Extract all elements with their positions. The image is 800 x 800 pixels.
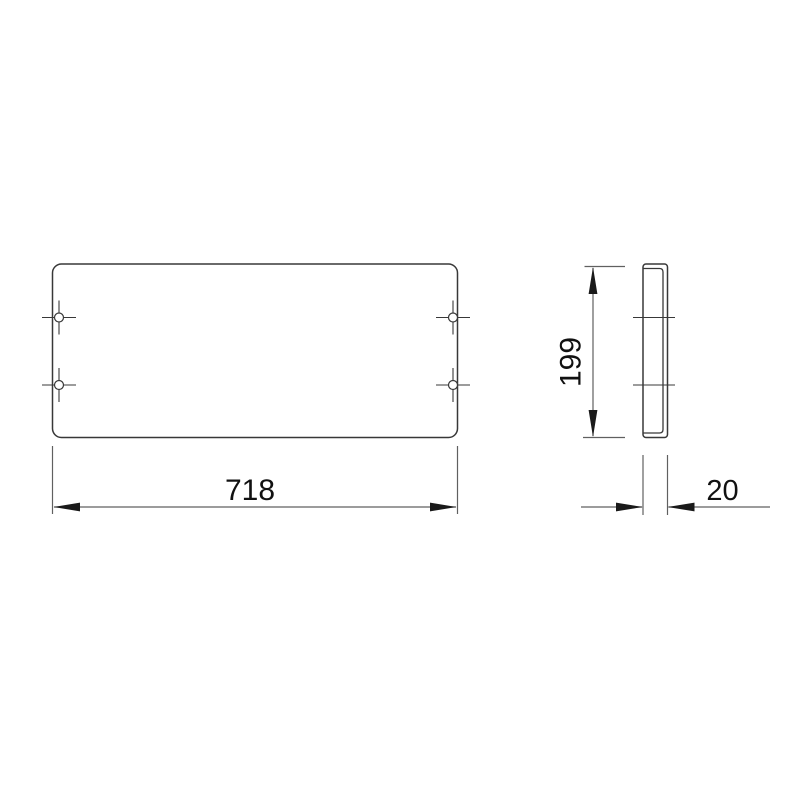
hole-circle bbox=[449, 313, 458, 322]
arrowhead-left-icon bbox=[668, 503, 695, 512]
height-dimension: 199 bbox=[555, 267, 626, 438]
hole-circle bbox=[55, 313, 64, 322]
hole-circle bbox=[449, 381, 458, 390]
arrowhead-down-icon bbox=[589, 410, 598, 437]
drawing-canvas: 718 199 20 bbox=[0, 0, 800, 800]
front-view bbox=[42, 264, 470, 438]
depth-dimension: 20 bbox=[581, 455, 770, 515]
arrowhead-up-icon bbox=[589, 267, 598, 294]
width-dimension: 718 bbox=[53, 446, 458, 514]
depth-dimension-label: 20 bbox=[706, 475, 738, 507]
arrowhead-right-icon bbox=[430, 503, 457, 512]
height-dimension-label: 199 bbox=[555, 337, 588, 387]
front-view-panel-outline bbox=[53, 264, 458, 438]
side-view-profile-outline bbox=[643, 264, 668, 438]
width-dimension-label: 718 bbox=[225, 474, 275, 507]
arrowhead-left-icon bbox=[54, 503, 81, 512]
hole-circle bbox=[55, 381, 64, 390]
arrowhead-right-icon bbox=[616, 503, 643, 512]
technical-drawing: 718 199 20 bbox=[0, 0, 800, 800]
side-view bbox=[633, 264, 675, 438]
